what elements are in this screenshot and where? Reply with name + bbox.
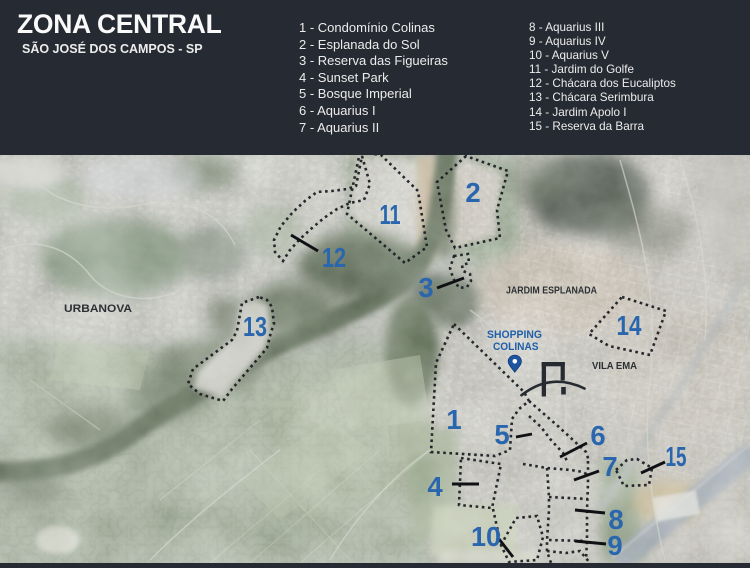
svg-text:1: 1: [446, 404, 461, 435]
svg-text:11: 11: [380, 199, 401, 230]
svg-text:3: 3: [418, 272, 433, 303]
svg-text:URBANOVA: URBANOVA: [64, 303, 132, 315]
svg-text:4: 4: [427, 471, 443, 502]
svg-text:13: 13: [243, 311, 267, 342]
svg-text:COLINAS: COLINAS: [493, 341, 539, 353]
svg-text:9: 9: [607, 530, 622, 561]
svg-text:7: 7: [602, 451, 617, 482]
svg-text:SHOPPING: SHOPPING: [487, 329, 542, 341]
svg-text:2: 2: [465, 177, 480, 208]
svg-text:14: 14: [617, 310, 643, 341]
svg-text:15: 15: [666, 441, 687, 472]
svg-text:5: 5: [494, 419, 509, 450]
svg-text:12: 12: [322, 242, 346, 273]
svg-text:6: 6: [590, 420, 605, 451]
svg-text:VILA EMA: VILA EMA: [592, 361, 637, 372]
svg-text:JARDIM ESPLANADA: JARDIM ESPLANADA: [506, 286, 597, 297]
svg-text:10: 10: [471, 521, 501, 552]
